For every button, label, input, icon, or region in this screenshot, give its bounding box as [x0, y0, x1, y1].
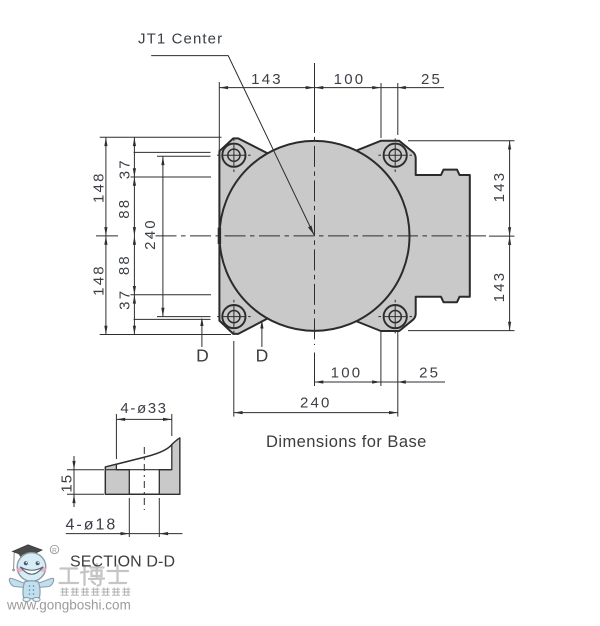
- svg-text:4-ø18: 4-ø18: [66, 517, 118, 534]
- svg-text:143: 143: [251, 71, 283, 88]
- svg-text:JT1 Center: JT1 Center: [138, 31, 223, 48]
- svg-text:Dimensions for Base: Dimensions for Base: [266, 433, 427, 451]
- svg-text:88: 88: [116, 254, 133, 275]
- svg-text:148: 148: [90, 264, 107, 296]
- svg-text:100: 100: [331, 365, 363, 382]
- svg-text:148: 148: [90, 171, 107, 203]
- svg-text:240: 240: [300, 395, 332, 412]
- svg-text:15: 15: [58, 474, 75, 493]
- svg-text:4-ø33: 4-ø33: [120, 400, 167, 417]
- svg-text:143: 143: [491, 171, 508, 203]
- svg-text:25: 25: [419, 365, 440, 382]
- svg-text:25: 25: [421, 71, 442, 88]
- svg-text:88: 88: [116, 198, 133, 219]
- svg-text:240: 240: [142, 218, 159, 250]
- svg-text:D: D: [196, 346, 209, 366]
- svg-text:37: 37: [117, 289, 134, 310]
- svg-text:143: 143: [491, 271, 508, 303]
- svg-text:100: 100: [334, 71, 366, 88]
- svg-text:SECTION D-D: SECTION D-D: [70, 554, 175, 571]
- svg-text:37: 37: [117, 158, 134, 179]
- svg-text:D: D: [256, 346, 269, 366]
- svg-text:R: R: [52, 547, 57, 554]
